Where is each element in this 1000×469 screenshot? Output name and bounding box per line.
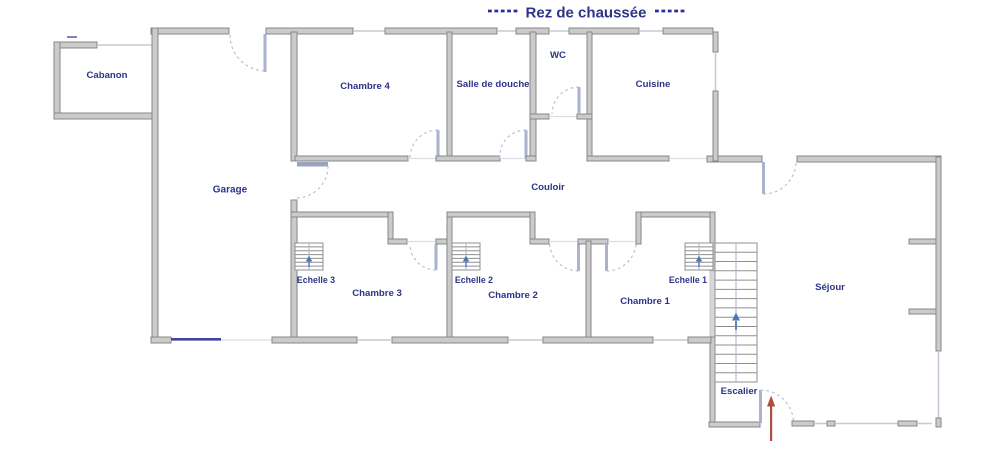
- svg-text:Escalier: Escalier: [721, 386, 758, 397]
- svg-text:WC: WC: [550, 50, 566, 61]
- svg-text:Chambre 3: Chambre 3: [352, 288, 402, 299]
- svg-text:Echelle 1: Echelle 1: [669, 275, 707, 285]
- svg-text:Séjour: Séjour: [815, 282, 845, 293]
- svg-text:Couloir: Couloir: [531, 182, 565, 193]
- svg-text:Garage: Garage: [213, 185, 248, 196]
- svg-text:Chambre 4: Chambre 4: [340, 81, 390, 92]
- svg-text:Salle de douche: Salle de douche: [456, 79, 529, 90]
- svg-text:Chambre 2: Chambre 2: [488, 290, 538, 301]
- svg-text:Chambre 1: Chambre 1: [620, 296, 670, 307]
- svg-text:Cabanon: Cabanon: [86, 70, 127, 81]
- svg-text:Echelle 2: Echelle 2: [455, 275, 493, 285]
- svg-text:Echelle 3: Echelle 3: [297, 275, 335, 285]
- svg-text:Rez de chaussée: Rez de chaussée: [526, 5, 647, 22]
- svg-text:Cuisine: Cuisine: [636, 79, 671, 90]
